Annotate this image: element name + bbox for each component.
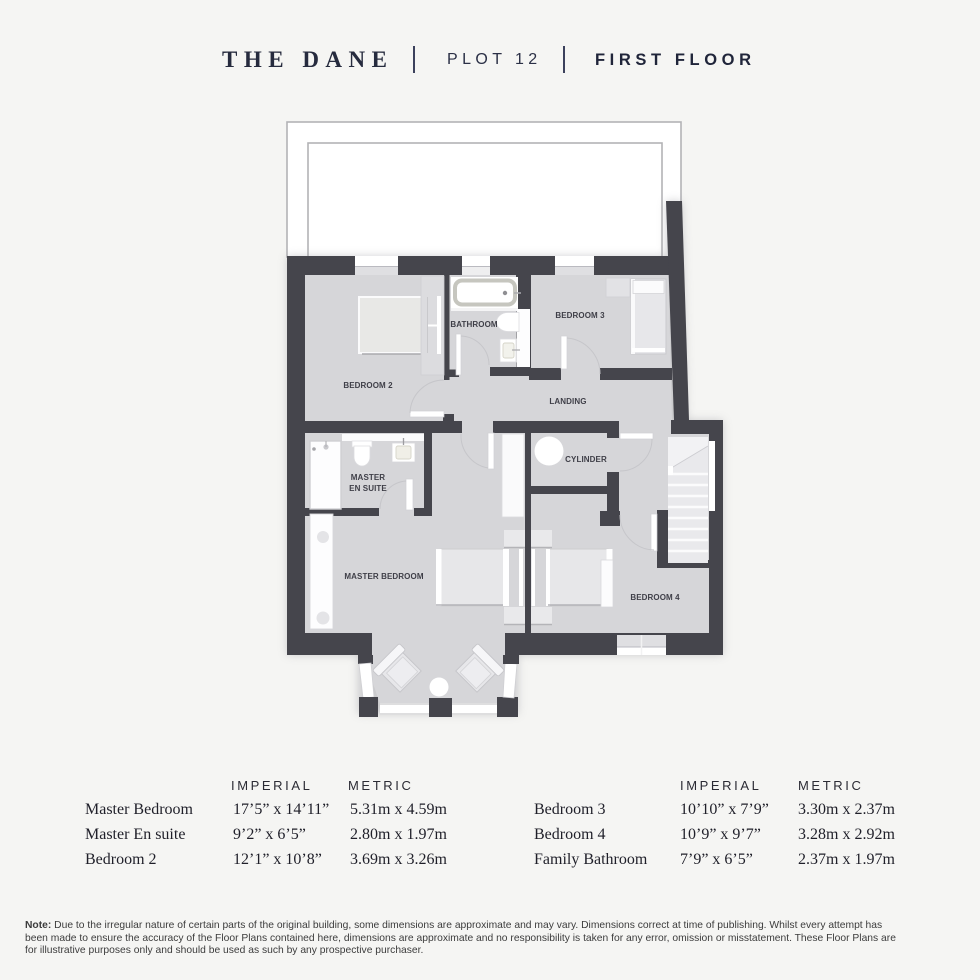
svg-text:LANDING: LANDING (549, 397, 586, 406)
svg-text:MASTER BEDROOM: MASTER BEDROOM (344, 572, 423, 581)
svg-text:CYLINDER: CYLINDER (565, 455, 607, 464)
svg-text:BEDROOM 3: BEDROOM 3 (555, 311, 605, 320)
svg-text:BEDROOM 2: BEDROOM 2 (343, 381, 393, 390)
svg-text:BEDROOM 4: BEDROOM 4 (630, 593, 680, 602)
svg-text:MASTER: MASTER (351, 473, 385, 482)
svg-text:BATHROOM: BATHROOM (450, 320, 498, 329)
svg-text:EN SUITE: EN SUITE (349, 484, 387, 493)
